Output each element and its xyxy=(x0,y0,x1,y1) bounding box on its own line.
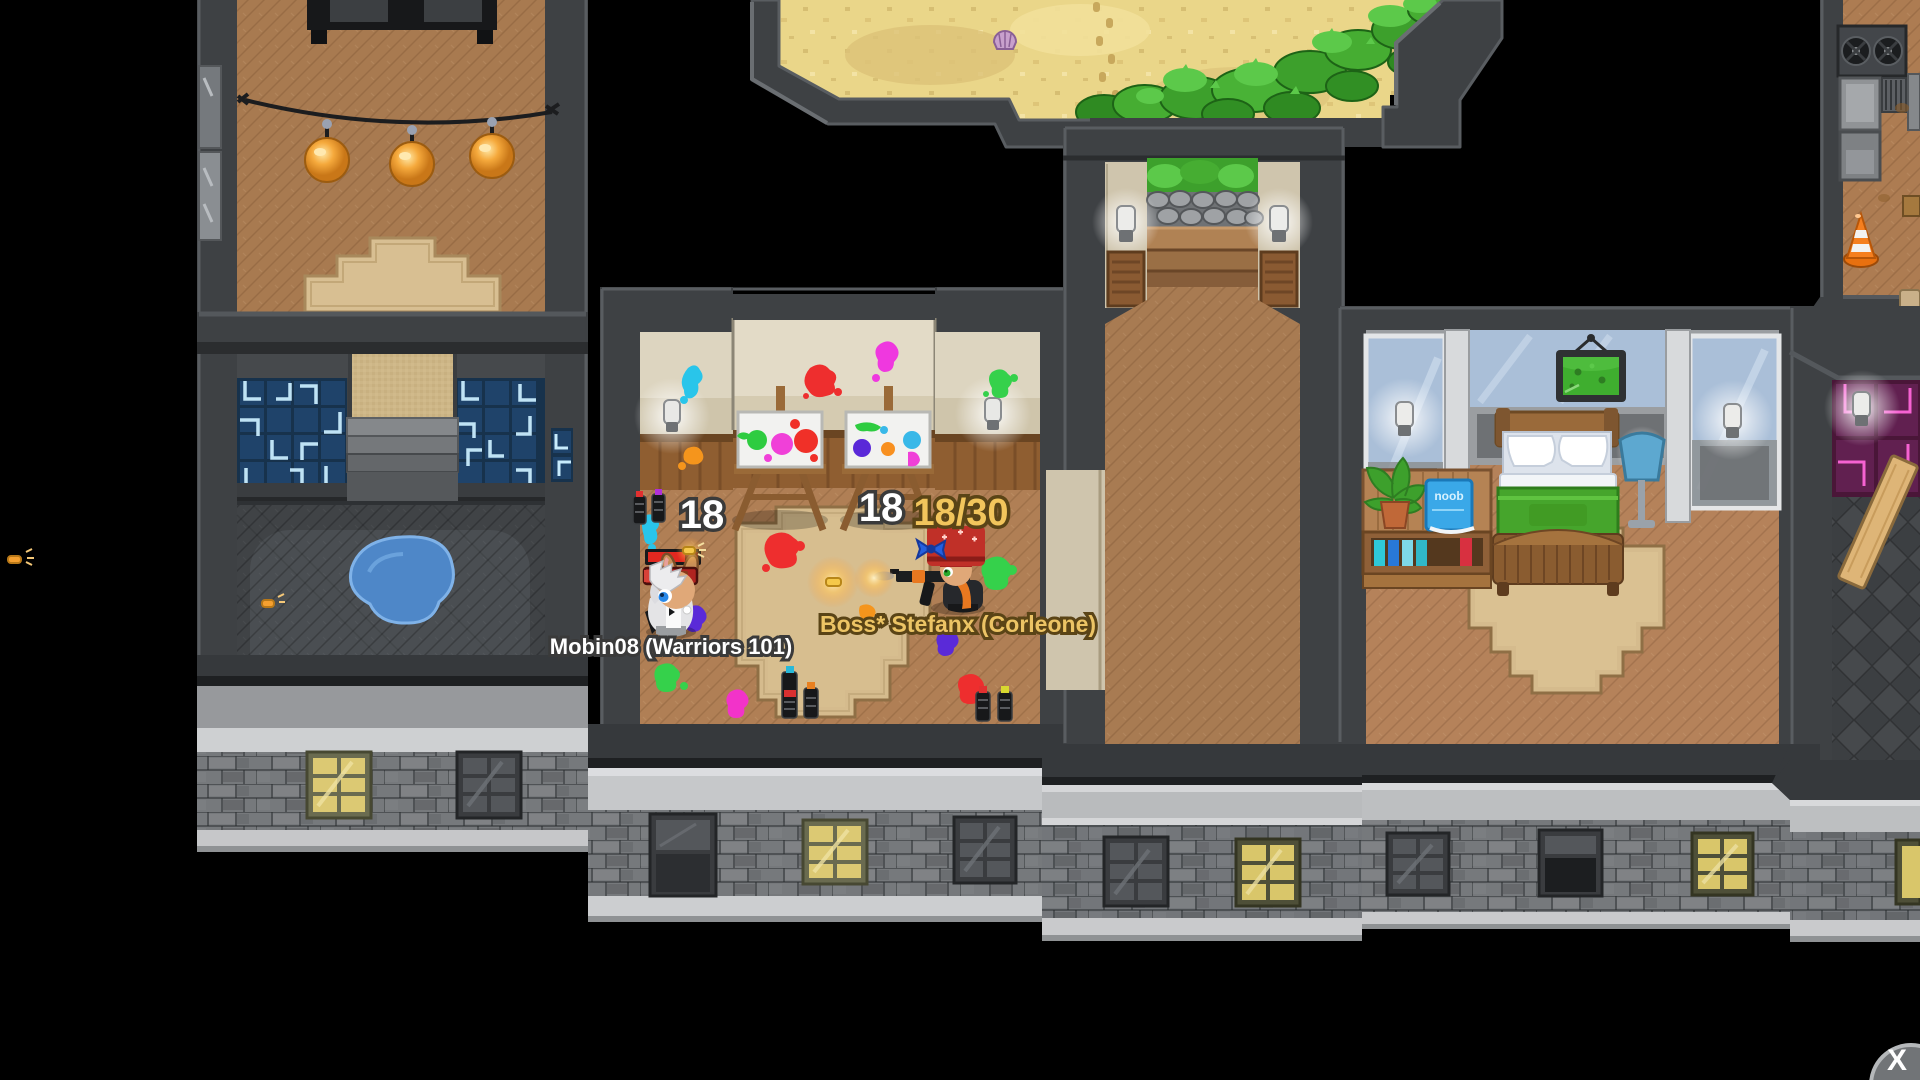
svg-text:Mobin08 (Warriors 101): Mobin08 (Warriors 101) xyxy=(550,634,792,659)
svg-text:X: X xyxy=(1887,1044,1907,1077)
svg-text:18: 18 xyxy=(859,486,904,530)
svg-text:noob: noob xyxy=(1434,489,1463,503)
svg-text:Boss* Stefanx (Corleone): Boss* Stefanx (Corleone) xyxy=(820,611,1096,637)
svg-text:18: 18 xyxy=(680,493,725,537)
svg-text:18/30: 18/30 xyxy=(913,492,1008,534)
